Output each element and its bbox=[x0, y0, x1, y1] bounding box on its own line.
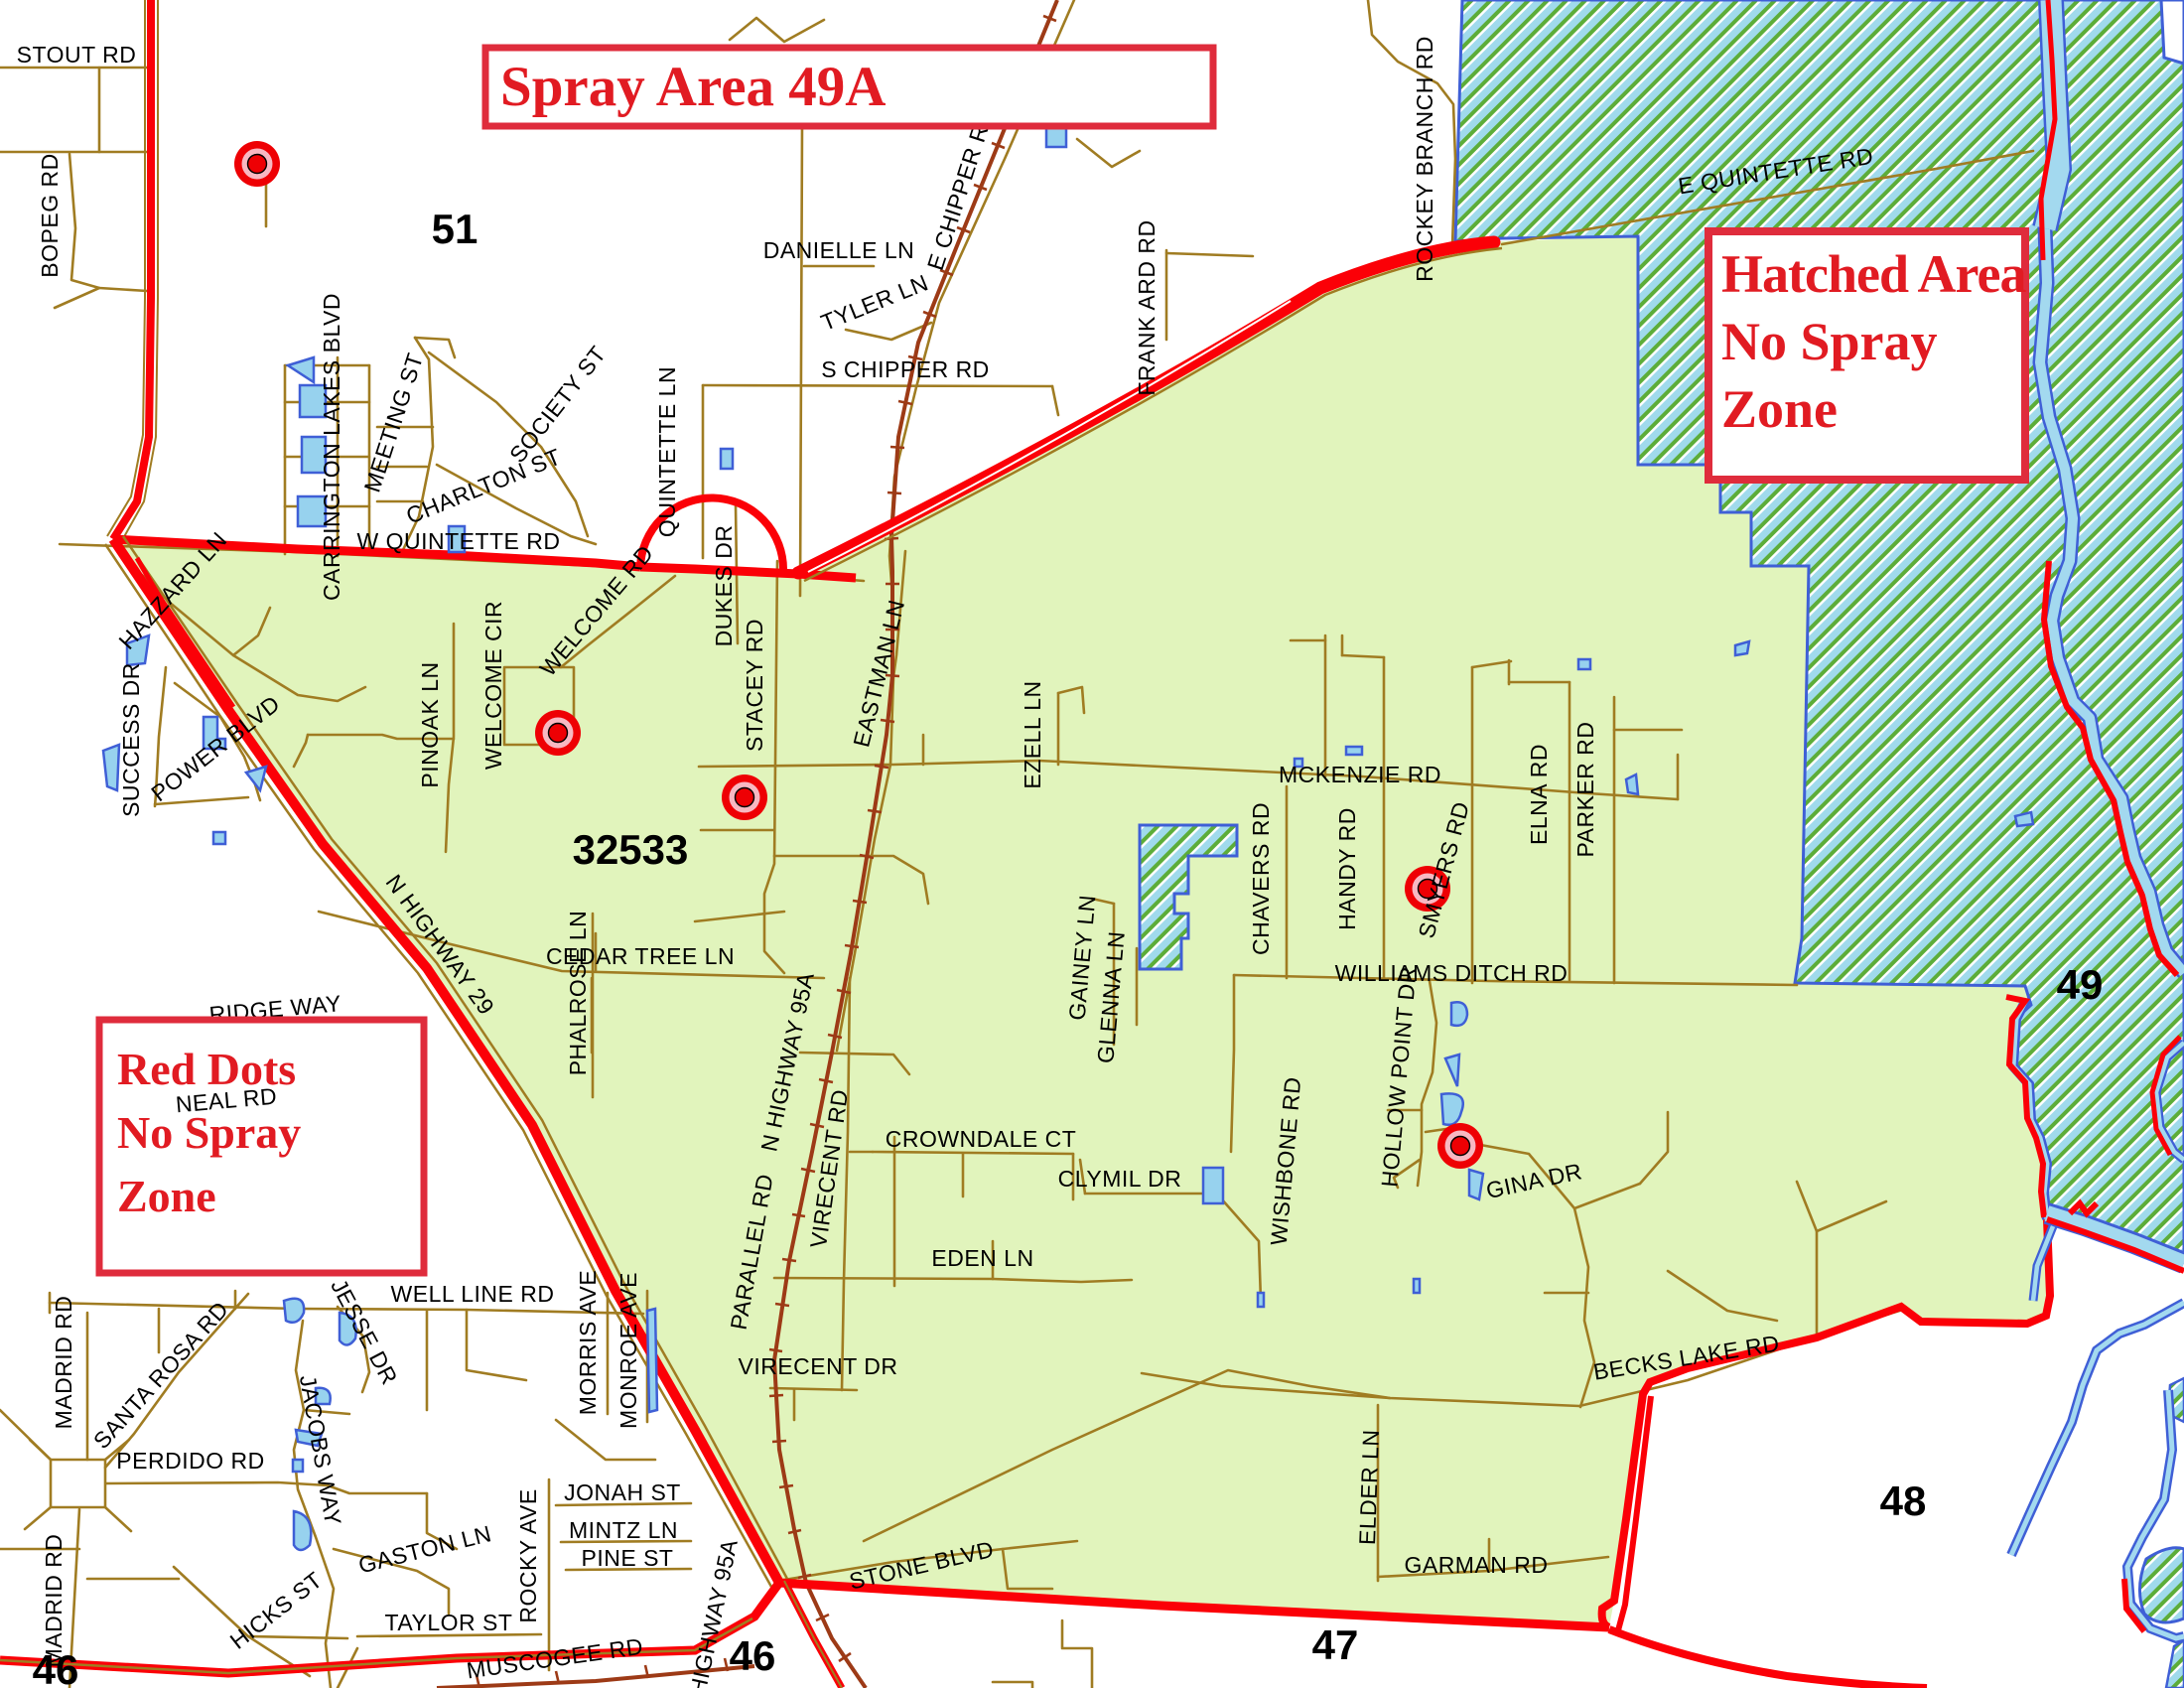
svg-text:PARKER RD: PARKER RD bbox=[1572, 722, 1598, 858]
svg-text:CARRINGTON LAKES BLVD: CARRINGTON LAKES BLVD bbox=[319, 293, 344, 601]
svg-text:MONROE AVE: MONROE AVE bbox=[615, 1272, 641, 1429]
svg-text:49: 49 bbox=[2057, 961, 2104, 1008]
svg-text:BOPEG RD: BOPEG RD bbox=[37, 153, 63, 277]
svg-text:MCKENZIE RD: MCKENZIE RD bbox=[1279, 762, 1441, 787]
svg-text:S CHIPPER RD: S CHIPPER RD bbox=[821, 356, 990, 382]
svg-text:No Spray: No Spray bbox=[1721, 312, 1938, 371]
svg-text:WELL LINE RD: WELL LINE RD bbox=[391, 1281, 555, 1307]
svg-text:WELCOME CIR: WELCOME CIR bbox=[480, 601, 506, 770]
svg-text:W QUINTETTE RD: W QUINTETTE RD bbox=[356, 528, 560, 554]
svg-text:MINTZ LN: MINTZ LN bbox=[569, 1517, 678, 1543]
svg-text:CLYMIL DR: CLYMIL DR bbox=[1058, 1166, 1182, 1192]
svg-text:Hatched Area: Hatched Area bbox=[1721, 244, 2026, 304]
svg-text:MADRID RD: MADRID RD bbox=[51, 1296, 76, 1430]
svg-text:PHALROSE LN: PHALROSE LN bbox=[565, 911, 591, 1076]
svg-text:EDEN LN: EDEN LN bbox=[931, 1245, 1033, 1271]
svg-text:QUINTETTE LN: QUINTETTE LN bbox=[654, 366, 680, 537]
svg-text:Zone: Zone bbox=[1721, 379, 1838, 439]
svg-text:ROCKY AVE: ROCKY AVE bbox=[515, 1488, 541, 1622]
svg-text:48: 48 bbox=[1880, 1477, 1927, 1524]
svg-text:51: 51 bbox=[432, 206, 478, 252]
svg-text:PERDIDO RD: PERDIDO RD bbox=[116, 1448, 264, 1474]
svg-text:No Spray: No Spray bbox=[117, 1107, 301, 1158]
svg-text:TAYLOR ST: TAYLOR ST bbox=[385, 1610, 513, 1635]
svg-text:JONAH ST: JONAH ST bbox=[564, 1479, 681, 1505]
svg-text:ELNA RD: ELNA RD bbox=[1526, 744, 1552, 845]
svg-text:SUCCESS DR: SUCCESS DR bbox=[118, 662, 144, 817]
svg-text:CROWNDALE CT: CROWNDALE CT bbox=[886, 1126, 1077, 1152]
svg-text:47: 47 bbox=[1312, 1621, 1359, 1668]
svg-text:EZELL LN: EZELL LN bbox=[1020, 680, 1045, 788]
svg-text:ELDER LN: ELDER LN bbox=[1354, 1429, 1384, 1545]
svg-text:HANDY RD: HANDY RD bbox=[1334, 807, 1360, 930]
svg-text:GARMAN RD: GARMAN RD bbox=[1404, 1552, 1548, 1578]
svg-text:MORRIS AVE: MORRIS AVE bbox=[575, 1270, 601, 1415]
svg-text:PINE ST: PINE ST bbox=[582, 1545, 674, 1571]
svg-text:46: 46 bbox=[730, 1632, 776, 1679]
svg-text:Spray Area 49A: Spray Area 49A bbox=[500, 56, 886, 118]
svg-text:DUKES DR: DUKES DR bbox=[711, 525, 737, 647]
svg-text:32533: 32533 bbox=[573, 826, 689, 873]
svg-text:DANIELLE LN: DANIELLE LN bbox=[763, 237, 915, 263]
svg-text:STOUT RD: STOUT RD bbox=[17, 42, 137, 68]
svg-text:VIRECENT DR: VIRECENT DR bbox=[739, 1353, 898, 1379]
svg-text:PINOAK LN: PINOAK LN bbox=[417, 661, 443, 787]
svg-text:46: 46 bbox=[33, 1646, 79, 1688]
svg-text:FRANK ARD RD: FRANK ARD RD bbox=[1134, 219, 1160, 395]
svg-text:ROCKEY BRANCH RD: ROCKEY BRANCH RD bbox=[1412, 36, 1437, 282]
svg-text:CHAVERS RD: CHAVERS RD bbox=[1248, 802, 1274, 955]
svg-text:Zone: Zone bbox=[117, 1171, 216, 1221]
svg-text:STACEY RD: STACEY RD bbox=[742, 619, 767, 752]
svg-text:WILLIAMS DITCH RD: WILLIAMS DITCH RD bbox=[1335, 960, 1569, 986]
